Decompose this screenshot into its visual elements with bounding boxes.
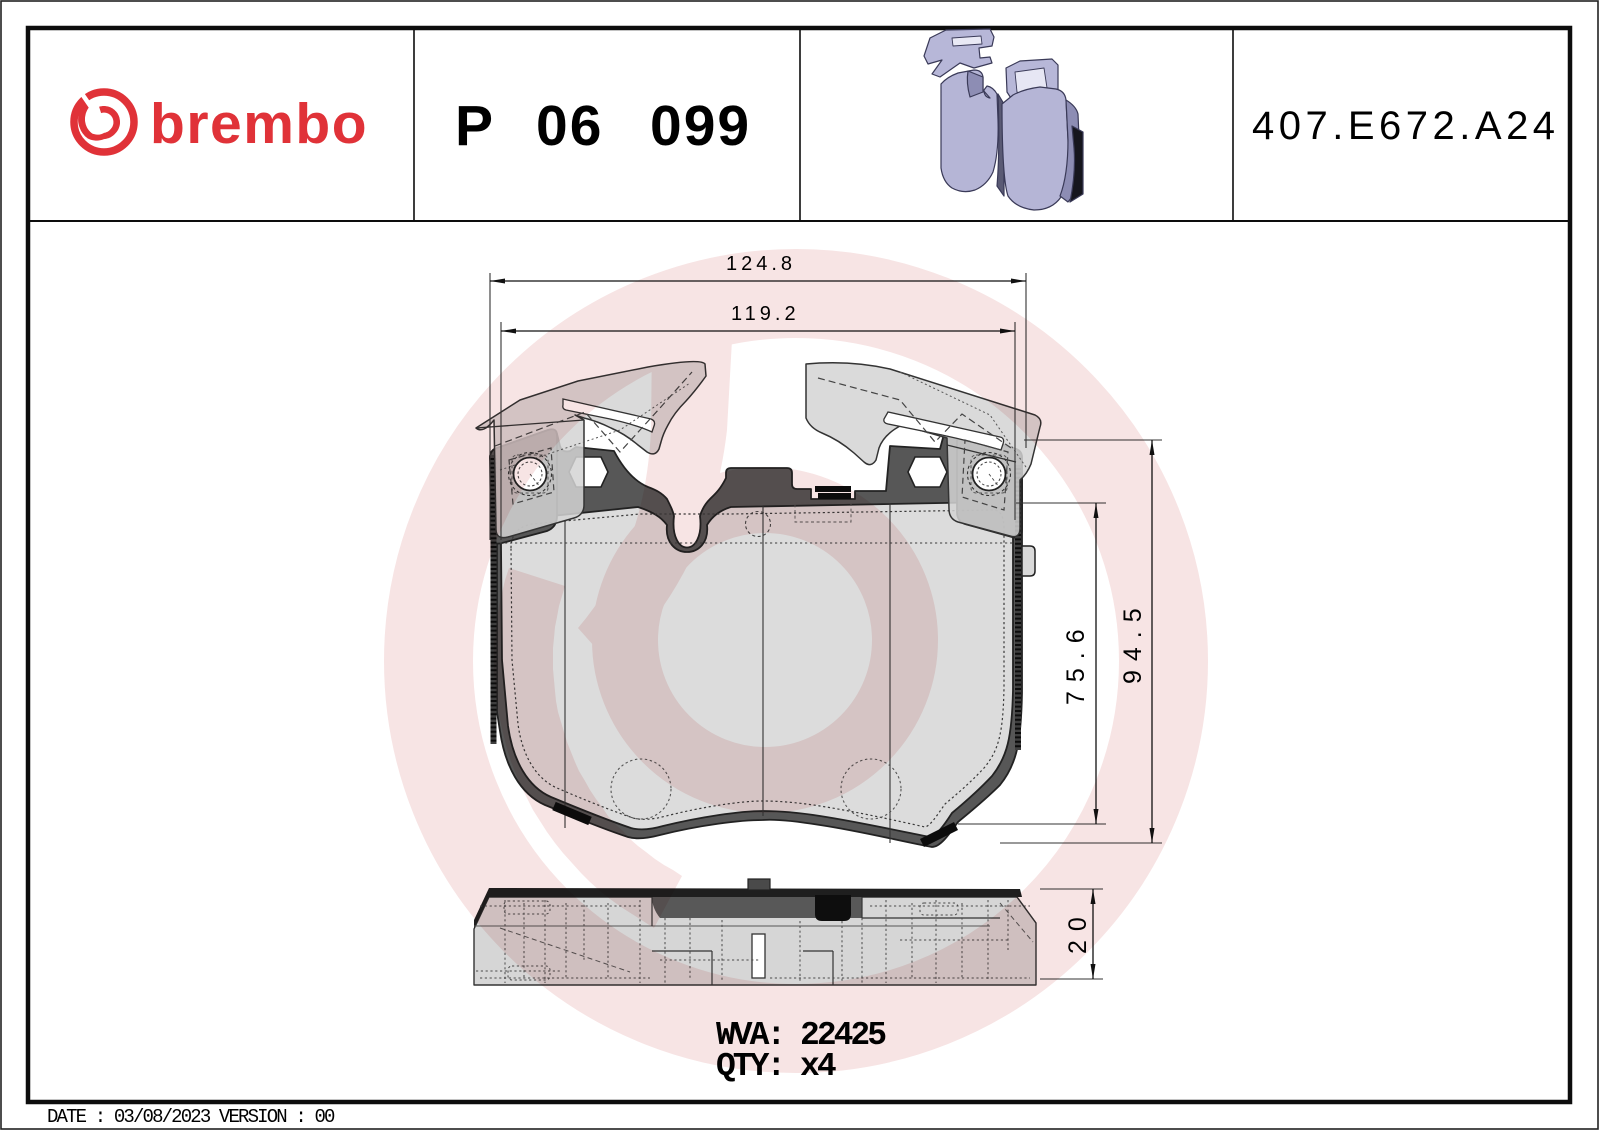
svg-text:DATE : 03/08/2023 VERSION : 00: DATE : 03/08/2023 VERSION : 00 [47,1106,335,1128]
svg-text:75.6: 75.6 [1062,620,1090,705]
svg-text:brembo: brembo [150,92,368,156]
svg-text:407.E672.A24: 407.E672.A24 [1252,104,1560,148]
svg-text:P06099: P06099 [455,94,751,158]
